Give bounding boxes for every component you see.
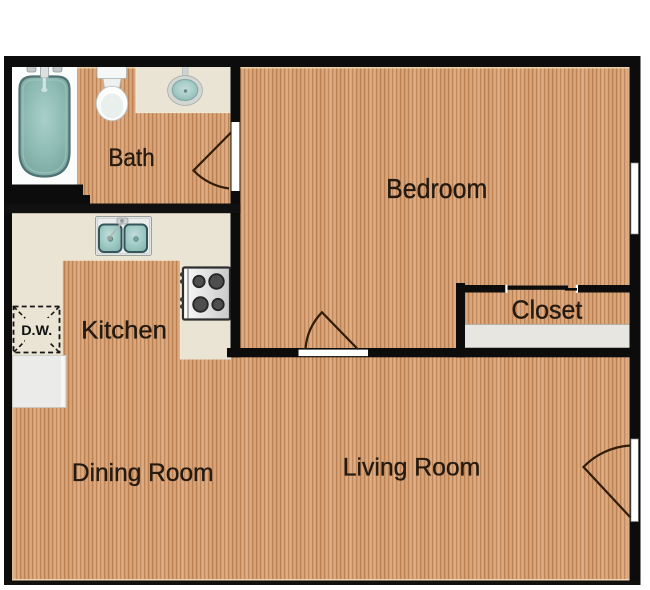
svg-text:Bedroom: Bedroom [386, 173, 487, 205]
svg-text:Living Room: Living Room [343, 453, 480, 481]
svg-text:Closet: Closet [512, 296, 583, 325]
svg-text:D.W.: D.W. [21, 322, 52, 338]
svg-text:Dining Room: Dining Room [72, 460, 214, 487]
svg-text:Bath: Bath [108, 144, 154, 172]
svg-text:Kitchen: Kitchen [81, 317, 167, 345]
